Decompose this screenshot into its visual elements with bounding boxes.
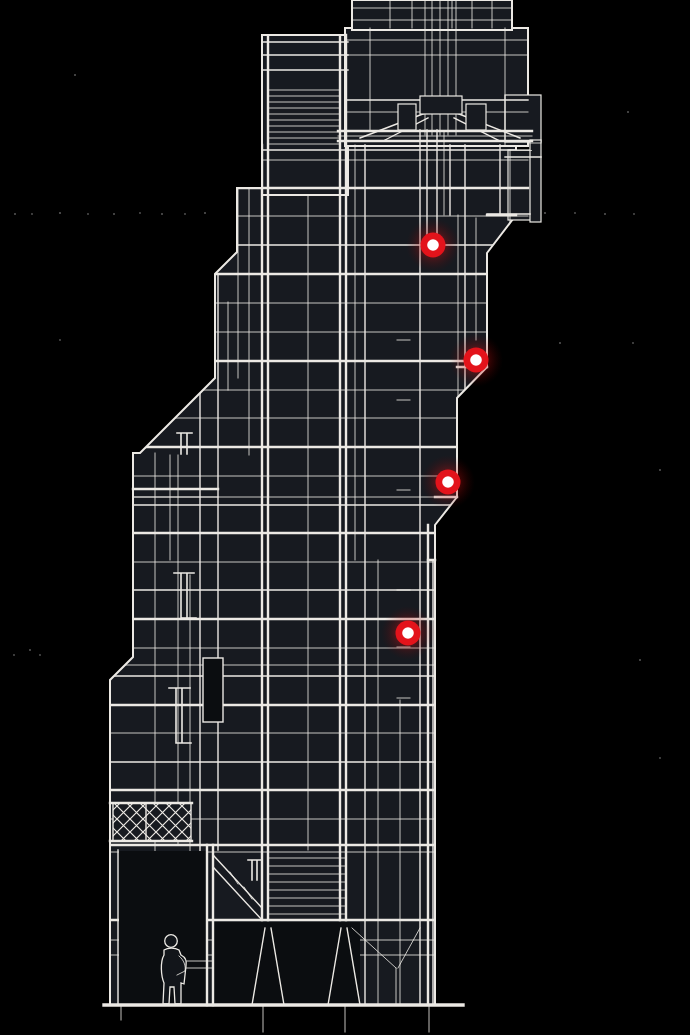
center-opening (212, 922, 360, 1005)
ladder-column-mass (262, 35, 348, 195)
hotspot-3[interactable] (421, 455, 475, 509)
right-thin-frame (530, 140, 541, 222)
top-machinery-box (345, 28, 528, 146)
hotspot-4[interactable] (381, 606, 435, 660)
tower-section-drawing (0, 0, 690, 1035)
marker-core (402, 627, 414, 639)
hatch-panel (110, 803, 192, 841)
tower-section-scene (0, 0, 690, 1035)
marker-core (427, 239, 439, 251)
marker-core (442, 476, 454, 488)
right-stub-box (508, 150, 532, 220)
hotspot-1[interactable] (406, 218, 460, 272)
door-recess (203, 658, 223, 722)
hotspot-2[interactable] (449, 333, 503, 387)
marker-core (470, 354, 482, 366)
